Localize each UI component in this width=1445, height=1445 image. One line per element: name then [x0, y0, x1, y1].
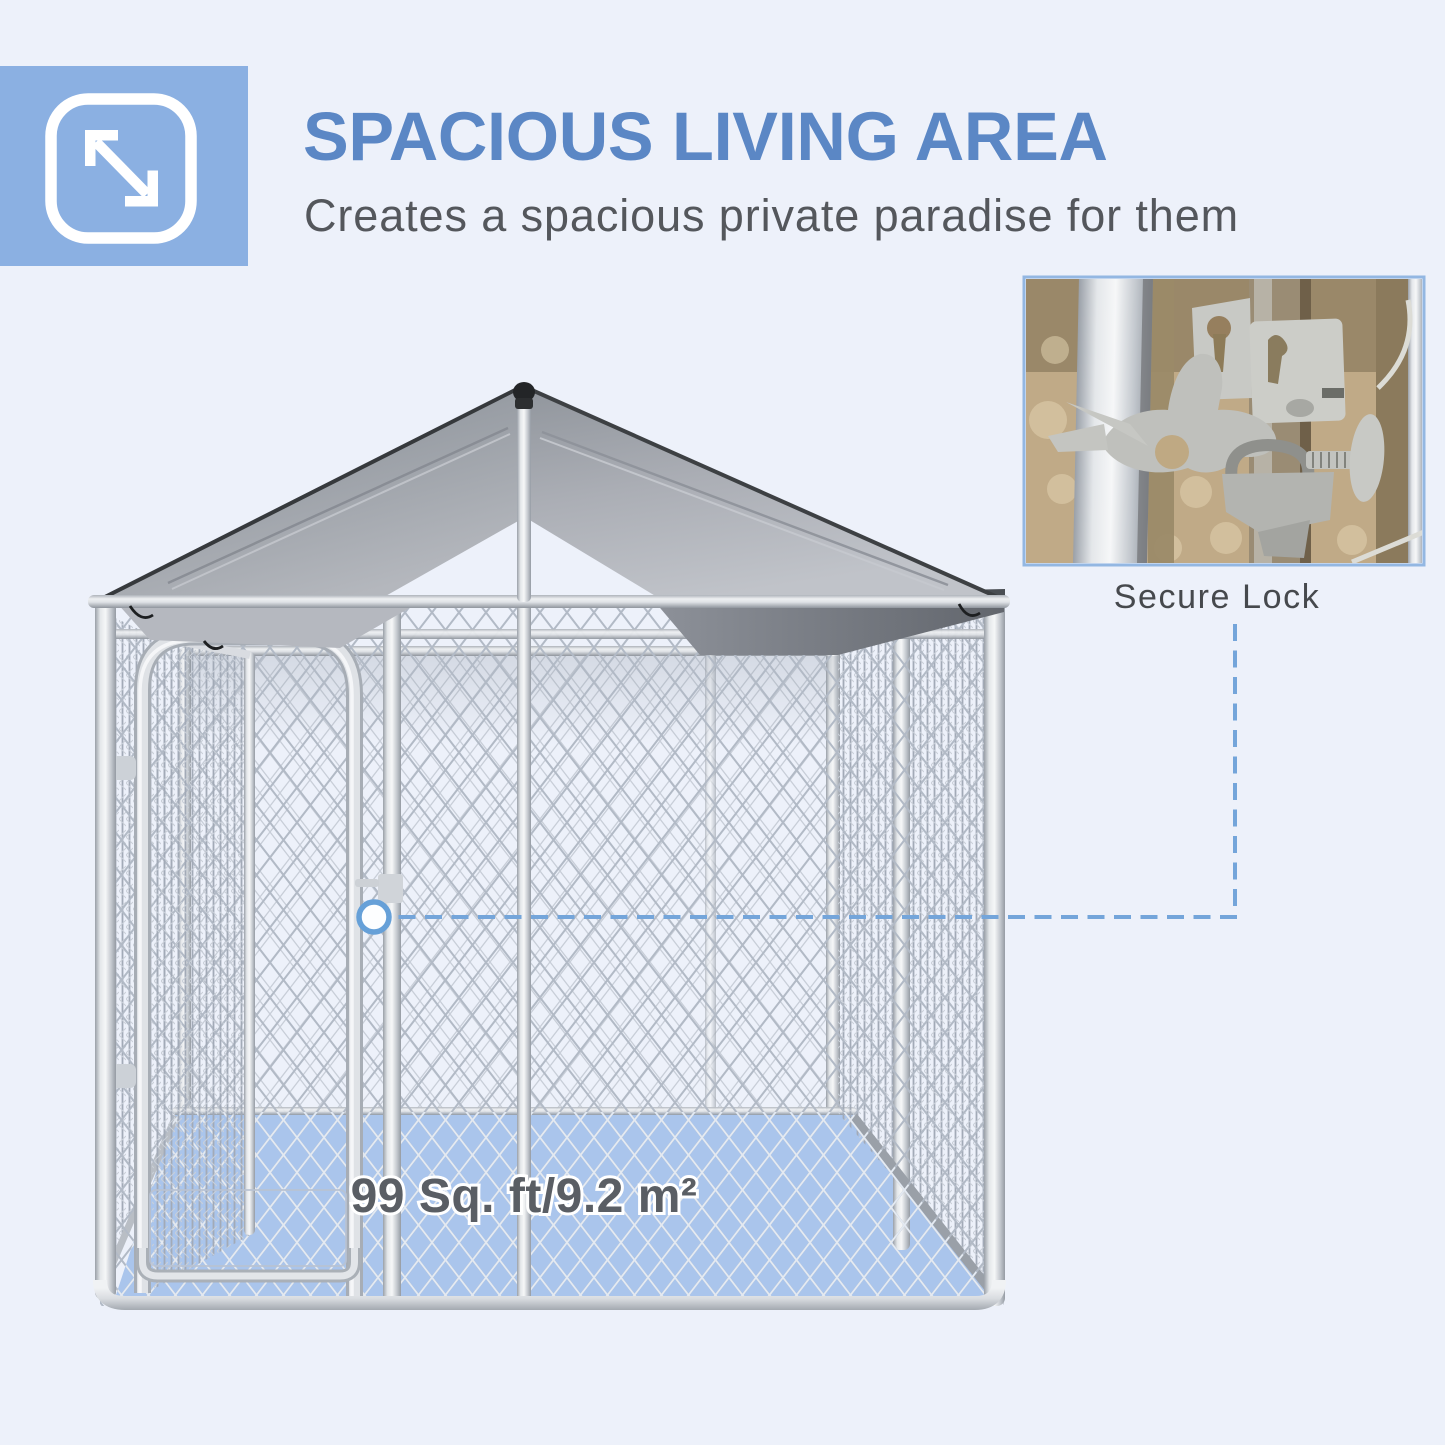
svg-text:SPACIOUS LIVING AREA: SPACIOUS LIVING AREA [303, 98, 1108, 175]
svg-text:99 Sq. ft/9.2 m²: 99 Sq. ft/9.2 m² [351, 1170, 698, 1223]
svg-text:Creates a spacious private par: Creates a spacious private paradise for … [304, 190, 1239, 241]
svg-text:Secure Lock: Secure Lock [1114, 578, 1321, 616]
